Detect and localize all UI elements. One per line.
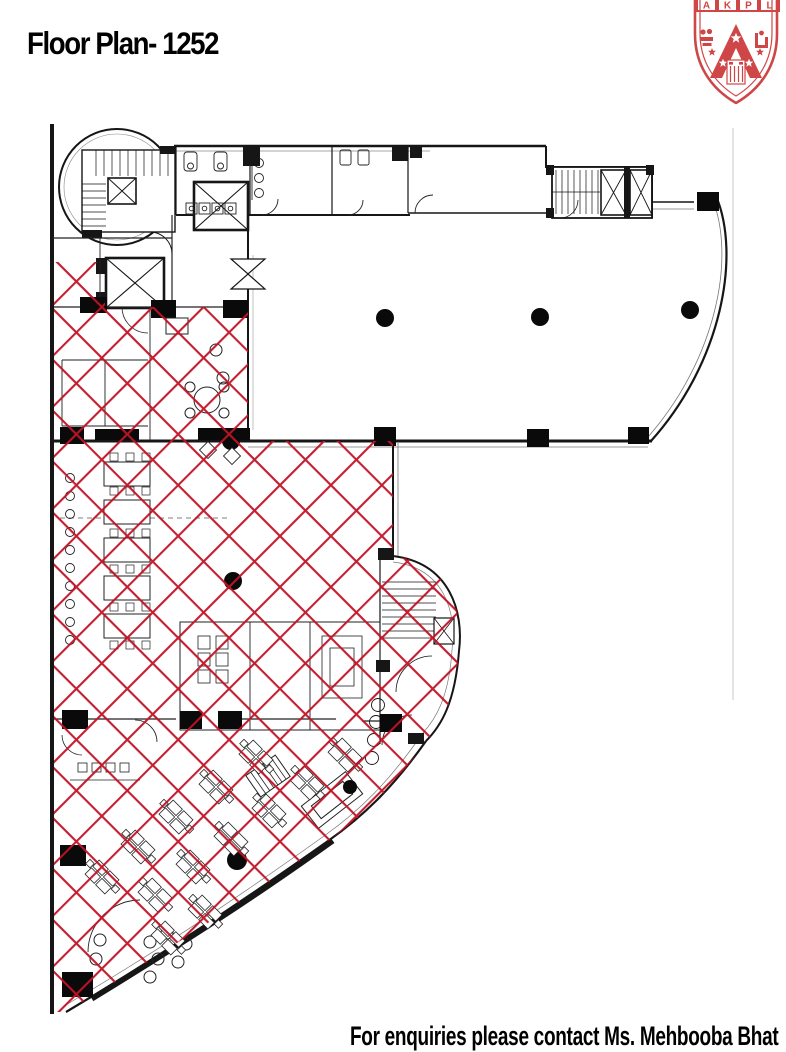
hatched-area-overlay [54, 262, 460, 1012]
floor-plan-page: { "page": { "title": "Floor Plan- 1252",… [0, 0, 786, 1045]
bowtie-column-marker [231, 259, 265, 289]
contact-note: For enquiries please contact Ms. Mehboob… [350, 1021, 778, 1052]
floor-plan-drawing [0, 0, 786, 1045]
stair-core-top-right [546, 165, 654, 218]
stair-tower [59, 129, 176, 254]
